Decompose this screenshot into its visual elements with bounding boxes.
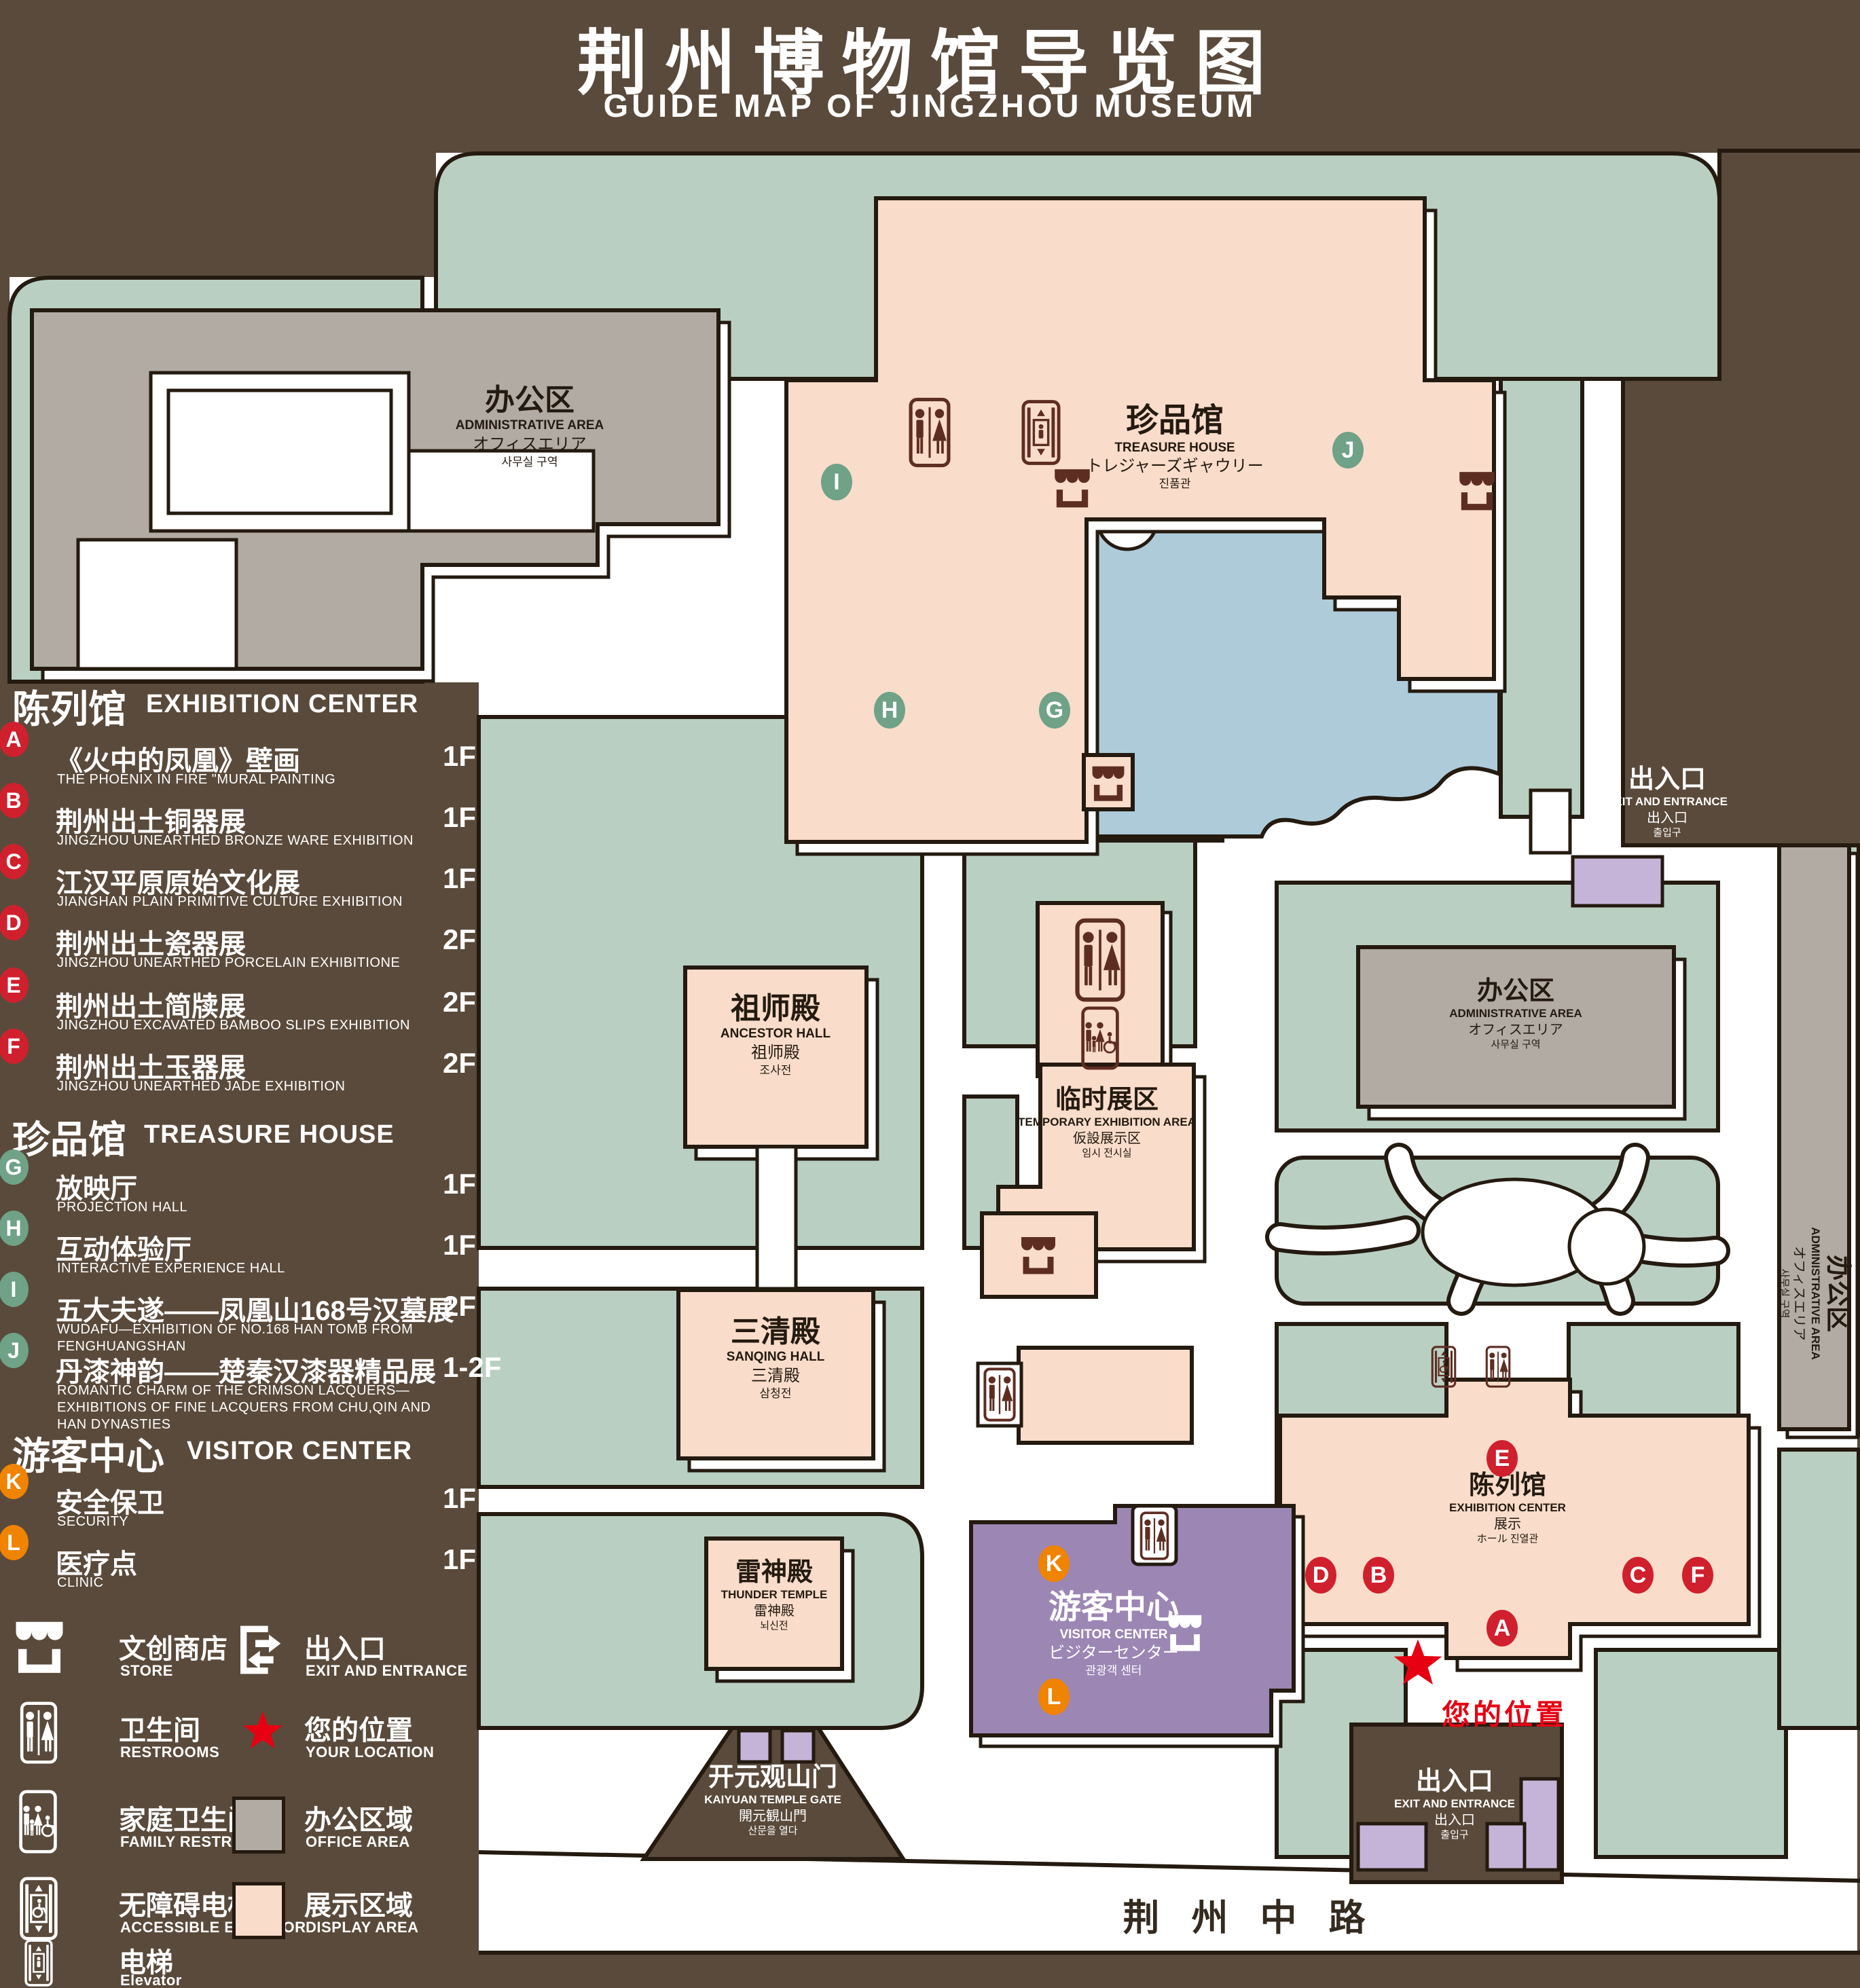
building-label-admin-side: 办公区 ADMINISTRATIVE AREA オフィスエリア 사무실 구역	[1778, 1227, 1851, 1360]
legend-item-H-floor: 1F	[443, 1229, 476, 1262]
exit-label-south: 出入口 EXIT AND ENTRANCE 出入口 출입구	[1394, 1768, 1515, 1841]
legend-badge-F: F	[0, 1029, 29, 1064]
legend-symbol-office-zh: 办公区域	[304, 1798, 413, 1837]
legend-item-A-floor: 1F	[443, 740, 476, 773]
path-column	[757, 1147, 796, 1289]
legend-badge-D: D	[0, 905, 29, 940]
legend-symbol-restrooms-en: RESTROOMS	[120, 1744, 219, 1761]
exit-entrance-icon	[234, 1623, 288, 1677]
legend-item-J-floor: 1-2F	[443, 1351, 501, 1384]
legend-symbol-store-en: STORE	[120, 1662, 173, 1680]
elevator-icon	[1023, 402, 1059, 464]
building-label-sanqing: 三清殿 SANQING HALL 三清殿 삼청전	[727, 1316, 825, 1401]
building-label-admin-right: 办公区 ADMINISTRATIVE AREA オフィスエリア 사무실 구역	[1449, 978, 1582, 1051]
legend-symbol-location-en: YOUR LOCATION	[306, 1744, 434, 1761]
legend-item-G-floor: 1F	[443, 1168, 476, 1200]
lawn-thunder-island	[479, 1514, 922, 1728]
legend-item-E-floor: 2F	[443, 986, 476, 1018]
marker-A: A	[1487, 1610, 1518, 1646]
store-annex-mid	[982, 1213, 1096, 1297]
legend-section-exhibition-en: EXHIBITION CENTER	[146, 690, 418, 719]
building-label-visitor: 游客中心 VISITOR CENTER ビジターセンター 관광객 센터	[1048, 1590, 1179, 1678]
legend-badge-H: H	[0, 1211, 29, 1246]
marker-C: C	[1622, 1557, 1654, 1594]
legend-badge-B: B	[0, 783, 29, 818]
legend-item-B-floor: 1F	[443, 801, 476, 834]
exit-label-north: 出入口 EXIT AND ENTRANCE 出入口 출입구	[1607, 766, 1728, 839]
gate-label: 开元观山门 KAIYUAN TEMPLE GATE 開元観山門 산문을 열다	[704, 1764, 841, 1837]
legend-item-H-en: INTERACTIVE EXPERIENCE HALL	[57, 1260, 492, 1277]
legend-symbol-display-en: DISPLAY AREA	[306, 1919, 419, 1936]
legend-badge-K: K	[0, 1464, 29, 1499]
legend-item-L-floor: 1F	[443, 1543, 476, 1576]
building-label-admin-top: 办公区 ADMINISTRATIVE AREA オフィスエリア 사무실 구역	[456, 384, 604, 469]
guide-map-poster: 荆州博物馆导览图 GUIDE MAP OF JINGZHOU MUSEUM	[0, 0, 1860, 1988]
legend-item-F-en: JINGZHOU UNEARTHED JADE EXHIBITION	[57, 1078, 492, 1095]
south-gate-right-tall	[1521, 1779, 1558, 1870]
legend-badge-A: A	[0, 722, 29, 757]
legend-item-A-en: THE PHOENIX IN FIRE "MURAL PAINTING	[57, 771, 492, 788]
legend-badge-J: J	[0, 1333, 29, 1368]
admin-courtyard-1-inner	[168, 390, 391, 513]
building-label-temporary: 临时展区 TEMPORARY EXHIBITION AREA 仮設展示区 임시 …	[1018, 1086, 1196, 1160]
legend-badge-G: G	[0, 1149, 29, 1185]
legend-symbol-exit-en: EXIT AND ENTRANCE	[306, 1662, 468, 1680]
legend-section-treasure: 珍品馆	[12, 1109, 126, 1164]
legend-item-D-floor: 2F	[443, 923, 476, 956]
legend-item-B-en: JINGZHOU UNEARTHED BRONZE WARE EXHIBITIO…	[57, 832, 492, 849]
lawn-east-lower	[1779, 1450, 1859, 1728]
legend-item-K-en: SECURITY	[57, 1513, 492, 1530]
gate-post-right	[782, 1731, 814, 1762]
building-label-exhibition: 陈列馆 EXHIBITION CENTER 展示 ホール 진열관	[1449, 1472, 1566, 1545]
marker-B: B	[1363, 1557, 1394, 1594]
store-icon	[8, 1620, 71, 1674]
family-restrooms-icon	[14, 1790, 62, 1854]
building-label-treasure: 珍品馆 TREASURE HOUSE トレジャーズギャウリー 진품관	[1086, 403, 1264, 492]
legend-item-F-floor: 2F	[443, 1047, 476, 1080]
legend-symbol-restrooms-zh: 卫生间	[119, 1708, 200, 1748]
accessible-elevator-icon	[1432, 1347, 1455, 1386]
legend-item-I-floor: 2F	[443, 1290, 476, 1323]
display-area-swatch	[232, 1882, 285, 1939]
legend-badge-E: E	[0, 968, 29, 1003]
office-area-swatch	[232, 1797, 285, 1854]
legend-item-C-en: JIANGHAN PLAIN PRIMITIVE CULTURE EXHIBIT…	[57, 894, 492, 910]
building-label-ancestor: 祖师殿 ANCESTOR HALL 祖师殿 조사전	[721, 993, 831, 1078]
lawn-bottom-right	[1596, 1650, 1786, 1857]
your-location-label: 您的位置	[1442, 1692, 1567, 1733]
legend-symbol-elevator-en: Elevator	[120, 1972, 182, 1988]
marker-J: J	[1332, 432, 1364, 468]
north-exit-gap	[1531, 790, 1570, 853]
restroom-wing	[1019, 1348, 1192, 1443]
legend-badge-I: I	[0, 1272, 29, 1307]
elevator-icon	[18, 1939, 60, 1987]
marker-L: L	[1038, 1678, 1070, 1715]
legend-symbol-display-zh: 展示区域	[304, 1883, 413, 1923]
legend-symbol-office-en: OFFICE AREA	[306, 1833, 410, 1851]
legend-section-visitor-en: VISITOR CENTER	[187, 1437, 412, 1466]
legend-section-treasure-en: TREASURE HOUSE	[144, 1120, 395, 1149]
gate-post-left	[739, 1731, 770, 1762]
marker-H: H	[874, 692, 905, 729]
legend-item-L-en: CLINIC	[57, 1575, 492, 1591]
north-exit-block	[1573, 857, 1662, 906]
lawn-right-arm	[1501, 379, 1582, 817]
legend-item-D-en: JINGZHOU UNEARTHED PORCELAIN EXHIBITIONE	[57, 955, 492, 972]
legend-item-G-en: PROJECTION HALL	[57, 1199, 492, 1216]
restrooms-icon	[18, 1701, 60, 1764]
building-label-thunder: 雷神殿 THUNDER TEMPLE 雷神殿 뇌신전	[721, 1559, 828, 1632]
marker-D: D	[1305, 1557, 1336, 1594]
legend-symbol-store-zh: 文创商店	[119, 1627, 227, 1666]
marker-K: K	[1038, 1545, 1070, 1582]
admin-courtyard-3	[78, 540, 236, 669]
legend-symbol-exit-zh: 出入口	[304, 1627, 386, 1666]
marker-F: F	[1682, 1557, 1713, 1594]
legend-item-C-floor: 1F	[443, 862, 476, 895]
your-location-icon	[242, 1710, 284, 1750]
road-label: 荆 州 中 路	[1123, 1888, 1376, 1941]
treasure-store-annex	[1084, 755, 1133, 809]
legend-symbol-location-zh: 您的位置	[304, 1708, 413, 1748]
legend-section-exhibition: 陈列馆	[12, 679, 126, 734]
legend-item-E-en: JINGZHOU EXCAVATED BAMBOO SLIPS EXHIBITI…	[57, 1017, 492, 1034]
legend-section-visitor: 游客中心	[12, 1426, 164, 1481]
legend-item-K-floor: 1F	[443, 1482, 476, 1515]
marker-G: G	[1039, 692, 1070, 729]
legend-badge-L: L	[0, 1525, 29, 1560]
accessible-elevator-icon	[18, 1877, 60, 1940]
marker-E: E	[1487, 1440, 1518, 1477]
marker-I: I	[821, 464, 852, 500]
legend-badge-C: C	[0, 844, 29, 879]
